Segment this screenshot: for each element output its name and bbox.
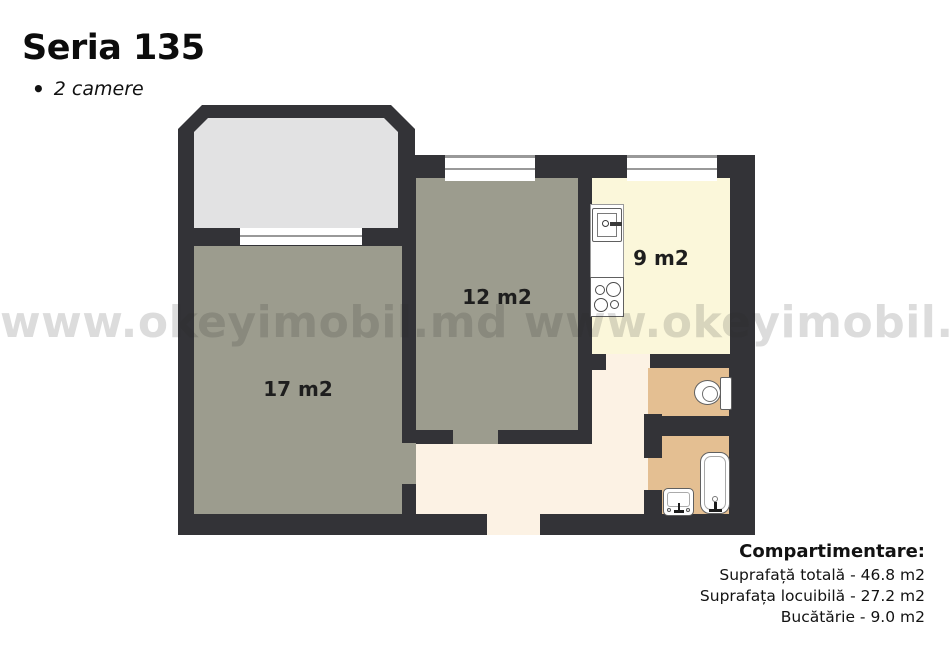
page-subtitle: • 2 camere	[32, 78, 144, 100]
bedroom-door-opening	[453, 430, 498, 444]
toilet-icon	[694, 380, 721, 405]
kitchen-sink-icon	[592, 208, 622, 242]
hallway-main	[416, 444, 592, 514]
floor-plan-page: Seria 135 • 2 camere	[0, 0, 950, 672]
legend-heading: Compartimentare:	[700, 541, 925, 562]
living-area-label: 17 m2	[194, 377, 402, 401]
faucet-icon	[610, 222, 622, 226]
wall-stub	[644, 414, 662, 458]
legend-living-area: Suprafața locuibilă - 27.2 m2	[700, 586, 925, 607]
page-title: Seria 135	[22, 28, 205, 68]
burner-icon	[606, 282, 621, 297]
burner-icon	[595, 285, 605, 295]
subtitle-label: 2 camere	[54, 78, 144, 100]
washbasin-icon	[663, 488, 694, 516]
balcony-room	[194, 118, 398, 228]
hallway-corridor	[592, 370, 648, 514]
faucet-icon	[674, 510, 684, 513]
living-door-opening	[402, 443, 416, 484]
bathtub-icon	[700, 452, 730, 514]
legend: Compartimentare: Suprafață totală - 46.8…	[700, 541, 925, 628]
faucet-knob-icon	[602, 220, 609, 227]
kitchen-area-label: 9 m2	[592, 246, 730, 270]
toilet-bowl-inner	[702, 386, 718, 402]
legend-total-area: Suprafață totală - 46.8 m2	[700, 565, 925, 586]
wall-stub	[644, 490, 662, 514]
window-glass-line	[240, 235, 362, 237]
toilet-tank-icon	[720, 377, 732, 410]
kitchen-window	[627, 155, 717, 181]
tap-handle-icon	[686, 508, 690, 512]
bedroom-window	[445, 155, 535, 181]
tap-handle-icon	[667, 508, 671, 512]
faucet-icon	[709, 509, 722, 512]
kitchen-hall-opening	[606, 354, 650, 370]
bullet-icon: •	[32, 79, 45, 99]
balcony-window	[240, 228, 362, 245]
watermark: www.okeyimobil.md www.okeyimobil.md	[0, 297, 950, 348]
window-glass-line	[445, 168, 535, 170]
entrance-door-opening	[487, 514, 540, 535]
window-glass-line	[627, 168, 717, 170]
legend-kitchen-area: Bucătărie - 9.0 m2	[700, 607, 925, 628]
